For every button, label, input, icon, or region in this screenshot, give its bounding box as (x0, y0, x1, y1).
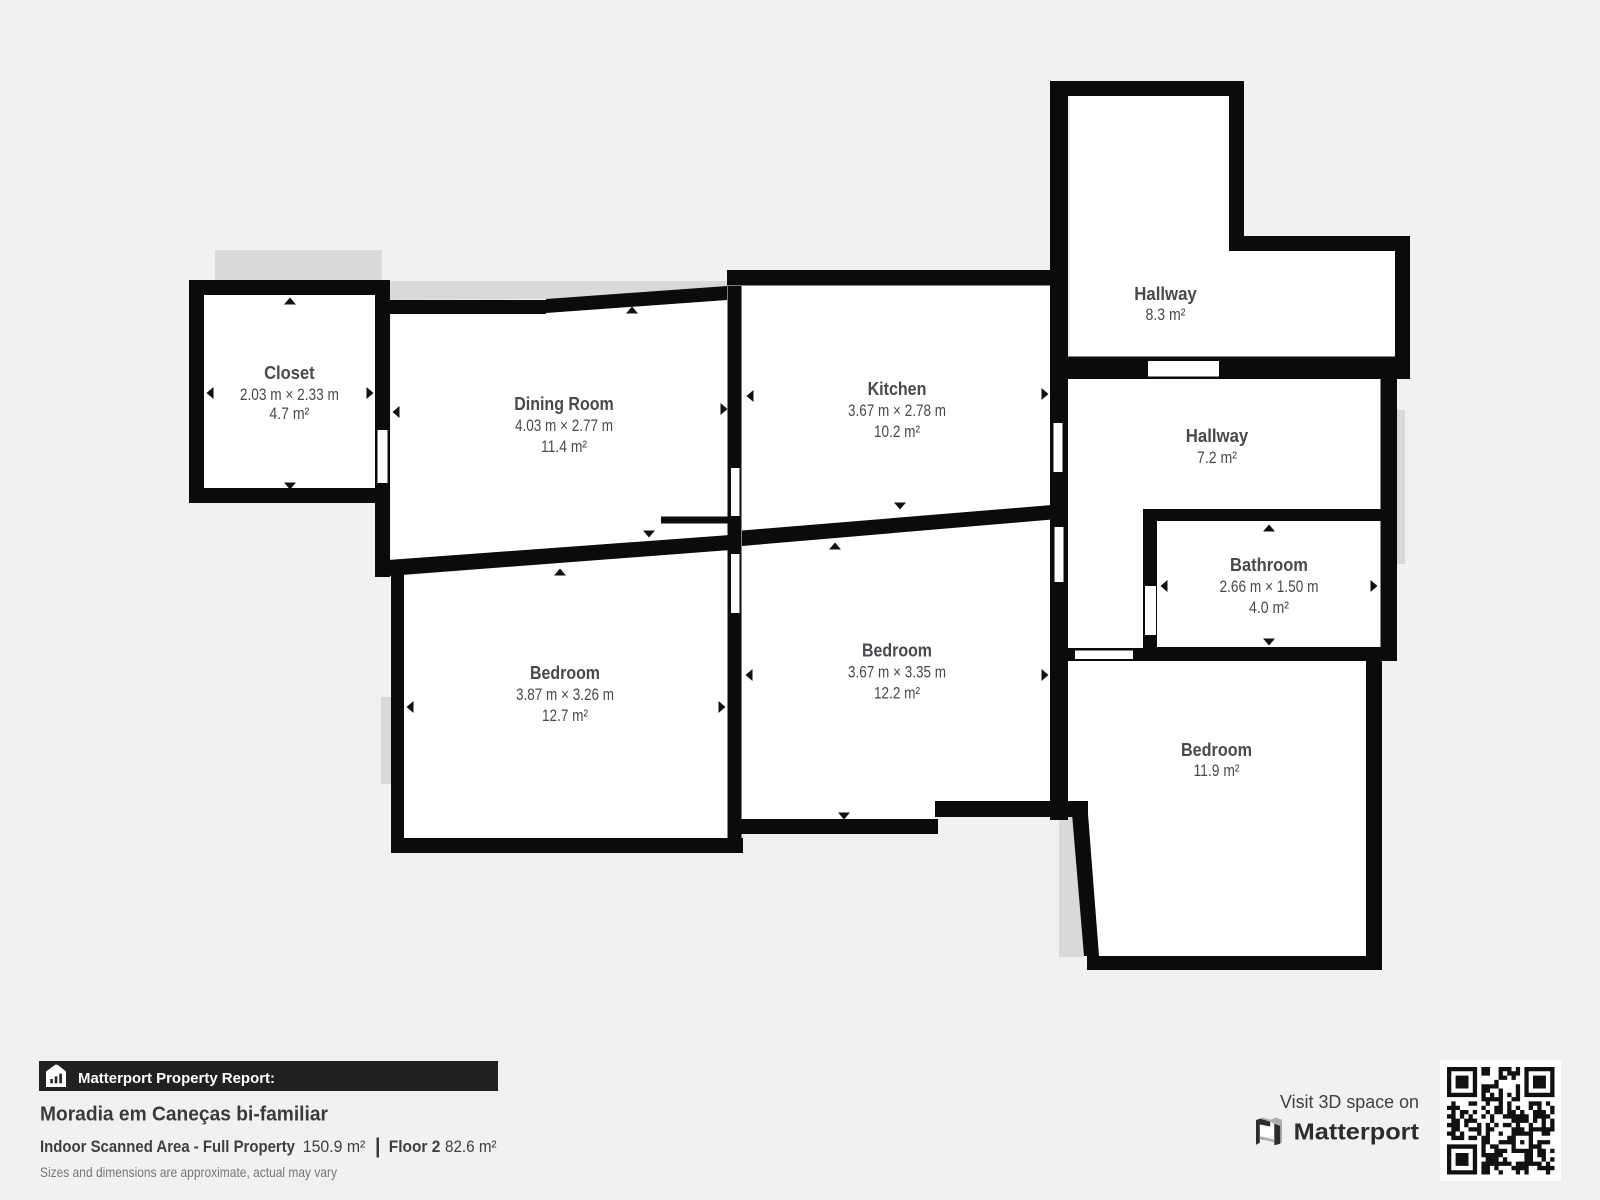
svg-text:11.4 m²: 11.4 m² (541, 437, 587, 456)
svg-text:Indoor Scanned Area - Full Pro: Indoor Scanned Area - Full Property (40, 1137, 295, 1156)
svg-text:Dining Room: Dining Room (514, 394, 614, 414)
svg-text:Bathroom: Bathroom (1230, 555, 1308, 575)
svg-text:7.2 m²: 7.2 m² (1197, 448, 1237, 467)
svg-text:Bedroom: Bedroom (862, 641, 932, 661)
svg-text:10.2 m²: 10.2 m² (874, 422, 920, 441)
svg-text:4.0 m²: 4.0 m² (1249, 598, 1289, 617)
svg-text:Bedroom: Bedroom (1181, 740, 1252, 760)
svg-text:4.7 m²: 4.7 m² (269, 404, 309, 423)
svg-text:12.7 m²: 12.7 m² (542, 706, 588, 725)
svg-text:3.67 m × 2.78 m: 3.67 m × 2.78 m (848, 401, 946, 420)
svg-text:11.9 m²: 11.9 m² (1194, 761, 1240, 780)
svg-text:3.67 m × 3.35 m: 3.67 m × 3.35 m (848, 663, 946, 682)
svg-text:Closet: Closet (264, 363, 315, 383)
svg-text:Kitchen: Kitchen (868, 379, 927, 399)
svg-text:Hallway: Hallway (1186, 426, 1249, 446)
svg-text:Visit 3D space on: Visit 3D space on (1280, 1092, 1419, 1112)
svg-text:4.03 m × 2.77 m: 4.03 m × 2.77 m (515, 416, 613, 435)
svg-text:Matterport: Matterport (1294, 1119, 1419, 1145)
svg-text:Matterport Property Report:: Matterport Property Report: (78, 1070, 275, 1087)
svg-text:3.87 m × 3.26 m: 3.87 m × 3.26 m (516, 685, 614, 704)
svg-text:Floor 2: Floor 2 (389, 1137, 441, 1156)
svg-text:Moradia em Caneças bi-familiar: Moradia em Caneças bi-familiar (40, 1103, 328, 1126)
svg-text:2.03 m × 2.33 m: 2.03 m × 2.33 m (240, 385, 339, 404)
svg-text:12.2 m²: 12.2 m² (874, 684, 920, 703)
svg-text:82.6 m²: 82.6 m² (445, 1137, 497, 1156)
svg-text:2.66 m × 1.50 m: 2.66 m × 1.50 m (1220, 577, 1319, 596)
svg-text:8.3 m²: 8.3 m² (1146, 305, 1186, 324)
svg-text:Sizes and dimensions are appro: Sizes and dimensions are approximate, ac… (40, 1164, 337, 1180)
svg-text:150.9 m²: 150.9 m² (303, 1137, 366, 1156)
svg-text:Bedroom: Bedroom (530, 663, 600, 683)
svg-text:Hallway: Hallway (1134, 284, 1197, 304)
